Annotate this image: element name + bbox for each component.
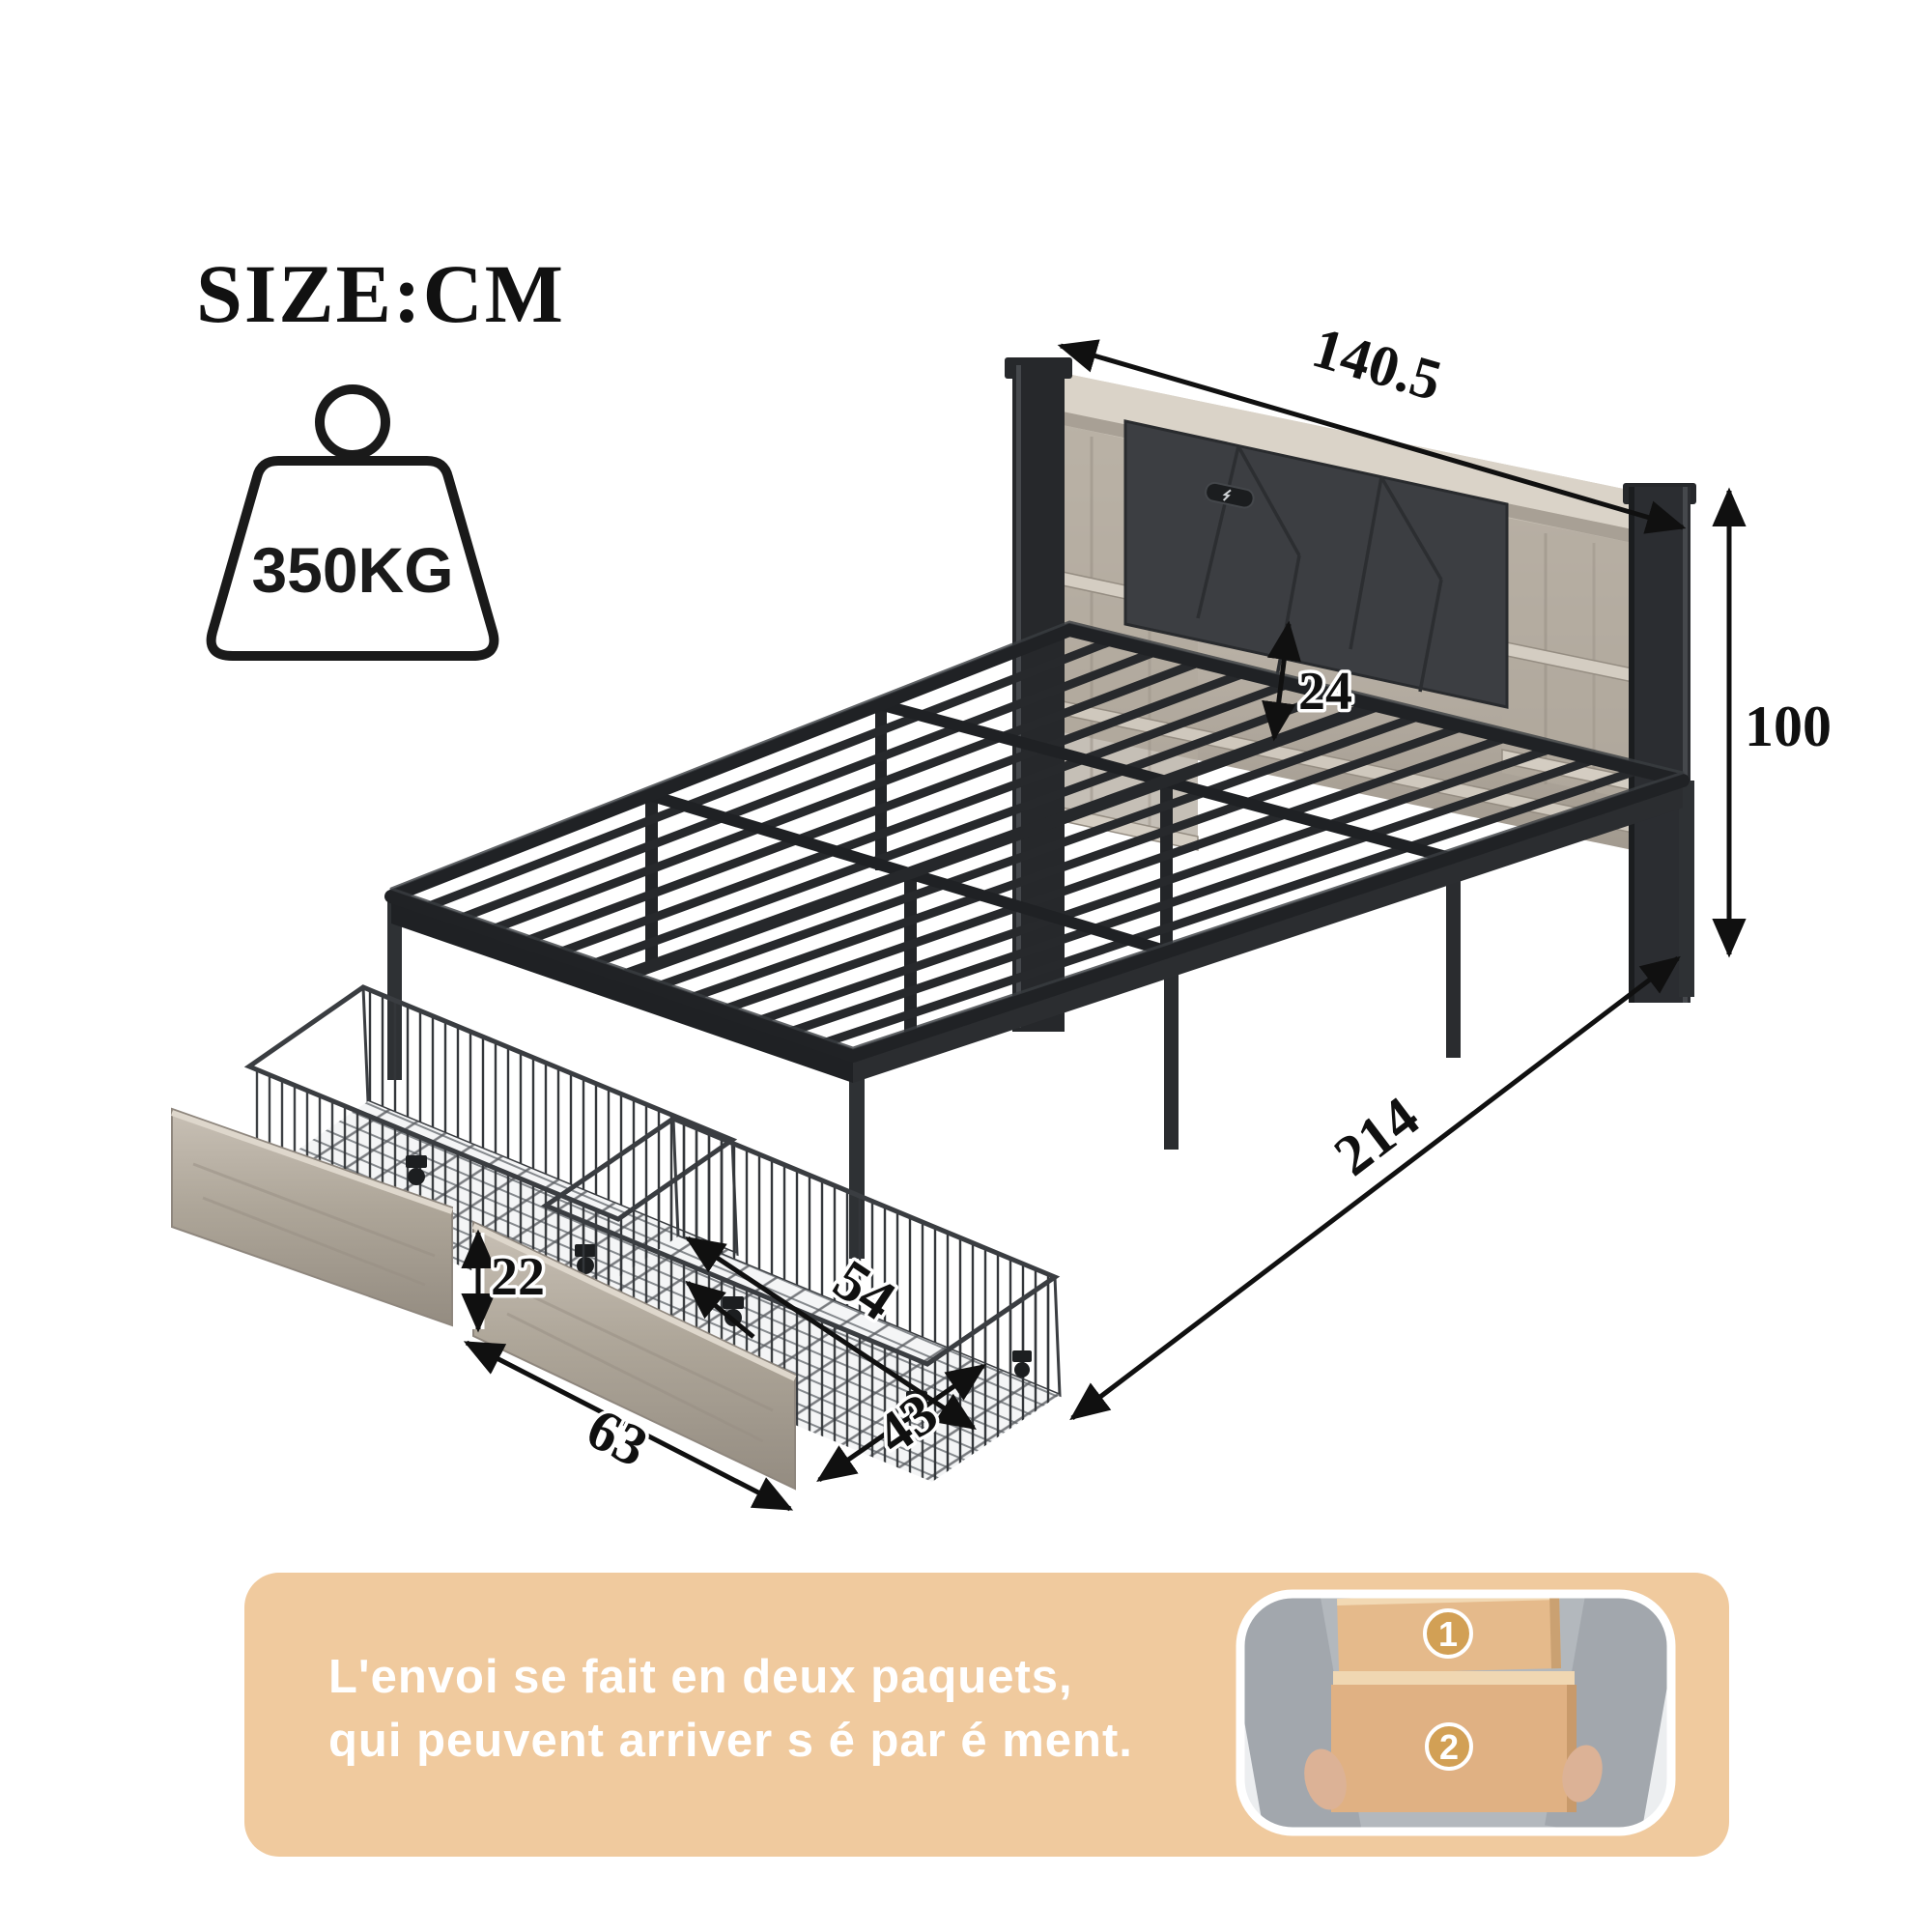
package-2-number: 2	[1439, 1727, 1459, 1767]
kettlebell-handle-icon	[320, 389, 385, 455]
product-dimension-diagram: SIZE:CM 350KG	[0, 0, 1932, 1932]
page-title: SIZE:CM	[196, 247, 565, 340]
diagram-canvas: SIZE:CM 350KG	[0, 0, 1932, 1932]
package-1-number: 1	[1438, 1614, 1458, 1654]
dimension-label-headboard-clearance: 24	[1298, 662, 1352, 722]
bed-leg	[1446, 860, 1461, 1058]
weight-capacity-label: 350KG	[251, 534, 453, 606]
dimension-label-drawer-height: 22	[491, 1247, 545, 1307]
shipping-banner: L'envoi se fait en deux paquets, qui peu…	[244, 1573, 1729, 1857]
shipping-text-line2: qui peuvent arriver s é par é ment.	[328, 1715, 1133, 1767]
shipping-text-line1: L'envoi se fait en deux paquets,	[328, 1651, 1073, 1703]
package-box-2-top	[1333, 1671, 1575, 1685]
bed-leg	[1164, 952, 1179, 1150]
dimension-label-total-height: 100	[1745, 695, 1832, 758]
bed-leg-head-right	[1679, 781, 1694, 997]
packages-photo: 1 2	[1224, 1587, 1682, 1844]
